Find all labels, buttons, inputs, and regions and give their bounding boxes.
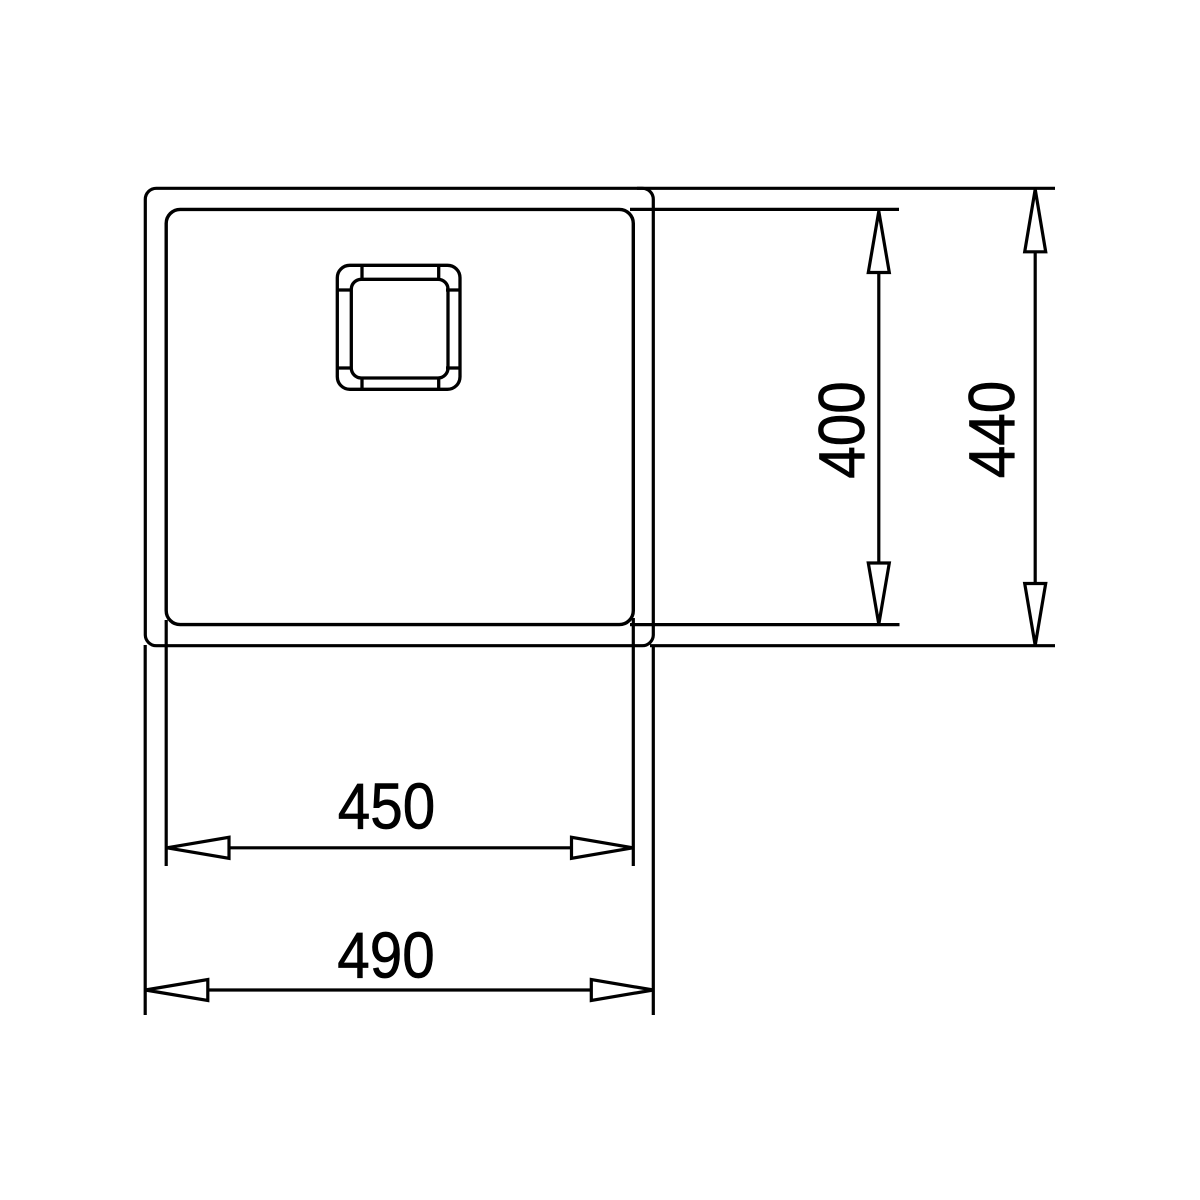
svg-text:450: 450 xyxy=(338,769,436,842)
svg-text:400: 400 xyxy=(805,381,878,479)
svg-text:440: 440 xyxy=(955,381,1028,479)
svg-text:490: 490 xyxy=(337,919,435,992)
